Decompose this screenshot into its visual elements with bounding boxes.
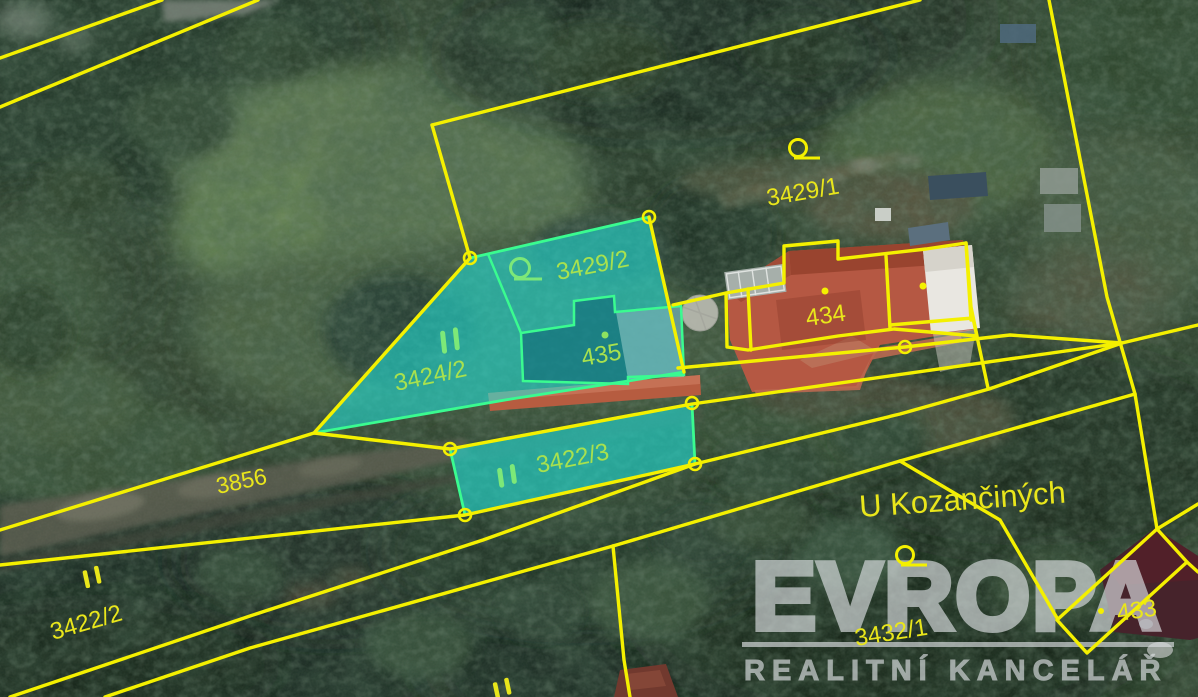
svg-text:434: 434 (804, 300, 847, 332)
svg-text:EVROPA: EVROPA (752, 543, 1162, 650)
svg-text:433: 433 (1115, 595, 1158, 627)
svg-text:REALITNÍ KANCELÁŘ: REALITNÍ KANCELÁŘ (744, 653, 1168, 687)
